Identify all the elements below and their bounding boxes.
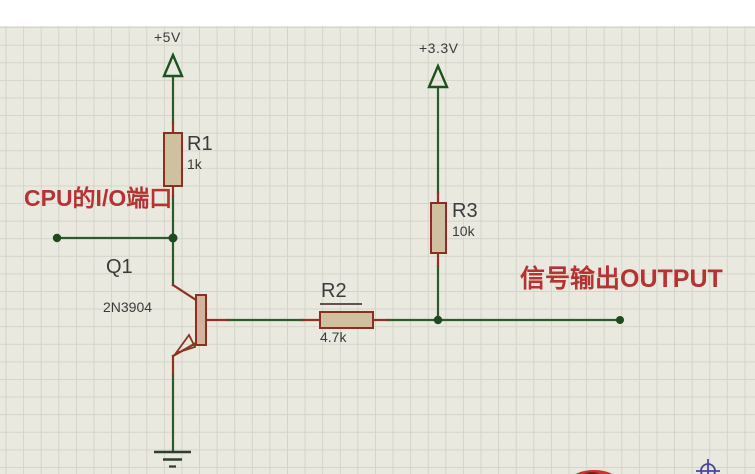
signal-output-annotation: 信号输出OUTPUT	[520, 266, 723, 292]
power-arrow-5v-icon[interactable]	[164, 55, 182, 76]
schematic-canvas: +5V +3.3V R1 1k Q1 2N3904 R2 4.7k R3 10k…	[0, 0, 755, 474]
schematic-drawing	[0, 0, 755, 474]
ground-symbol-icon[interactable]	[154, 452, 191, 467]
power-5v-label: +5V	[154, 30, 181, 45]
r2-ref-label: R2	[321, 281, 347, 302]
r1-ref-label: R1	[187, 134, 213, 155]
r1-value-label: 1k	[187, 157, 202, 172]
power-3v3-label: +3.3V	[419, 41, 458, 56]
pin-q1-collector	[173, 285, 196, 300]
logo-partial	[571, 469, 617, 474]
r3-value-label: 10k	[452, 224, 475, 239]
q1-ref-label: Q1	[106, 257, 133, 278]
junction-dot-collector	[169, 234, 178, 243]
origin-crosshair-icon	[696, 459, 720, 474]
power-arrow-3v3-icon[interactable]	[429, 66, 447, 87]
resistor-r3-body[interactable]	[431, 203, 446, 253]
component-pins	[173, 123, 438, 375]
transistor-q1[interactable]	[176, 295, 206, 353]
junction-dot-r3-output	[434, 316, 442, 324]
junction-dot-output-end	[616, 316, 624, 324]
r3-ref-label: R3	[452, 201, 478, 222]
resistor-r1-body[interactable]	[164, 133, 182, 186]
resistor-r2-body[interactable]	[320, 312, 373, 328]
cpu-io-port-annotation: CPU的I/O端口	[24, 186, 172, 210]
r2-value-label: 4.7k	[320, 330, 346, 345]
junction-dot-cpu-left	[53, 234, 61, 242]
q1-base-bar[interactable]	[196, 295, 206, 345]
q1-model-label: 2N3904	[103, 300, 152, 315]
